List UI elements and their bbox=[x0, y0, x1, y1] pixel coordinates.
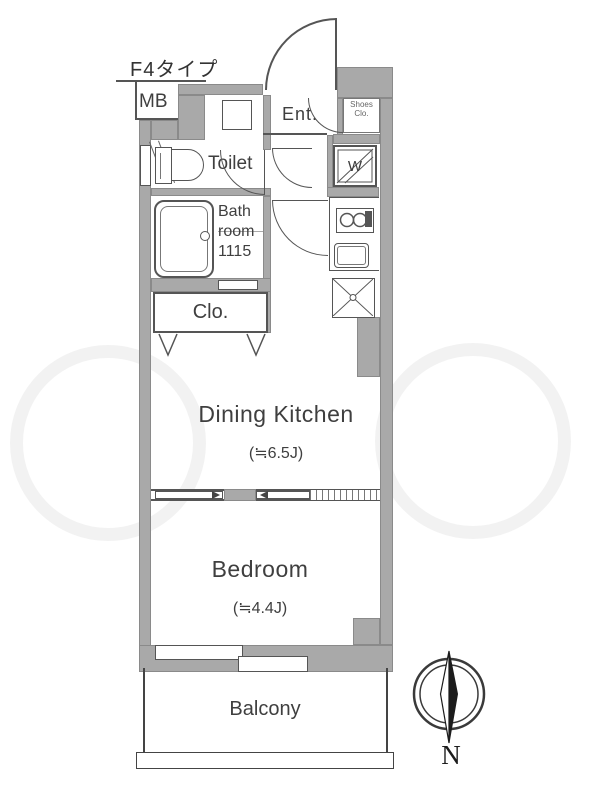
shoes-closet-door-arc bbox=[308, 98, 343, 133]
wall-ent-washer bbox=[333, 134, 380, 144]
wall-right bbox=[380, 98, 393, 645]
wall-top-right-block bbox=[337, 67, 393, 98]
wall-washer-kitchen bbox=[327, 187, 379, 197]
wall-toilet-top bbox=[151, 120, 178, 140]
balcony-label: Balcony bbox=[165, 698, 365, 721]
wall-bath-right-upper bbox=[263, 95, 271, 150]
bedroom-label: Bedroom bbox=[145, 556, 375, 583]
shoes-line1: Shoes bbox=[350, 100, 373, 109]
title-underline bbox=[116, 80, 206, 82]
wall-dk-pillar bbox=[357, 317, 380, 377]
partition-wall-chunk bbox=[224, 489, 256, 501]
wall-bedroom-pillar bbox=[353, 618, 380, 645]
partition-hatch bbox=[310, 489, 380, 501]
closet-door-triangle-right bbox=[246, 333, 266, 357]
sink-inner bbox=[337, 246, 366, 265]
toilet-bowl-icon bbox=[171, 149, 204, 181]
balcony-right-line bbox=[386, 668, 388, 752]
stove-icon bbox=[336, 208, 374, 233]
wall-left bbox=[139, 120, 151, 672]
utility-cabinet-box bbox=[222, 100, 252, 130]
genkan-step-line bbox=[263, 133, 327, 135]
north-label: N bbox=[433, 740, 469, 771]
refrigerator-cross bbox=[333, 279, 373, 316]
bathtub-knob bbox=[200, 231, 210, 241]
toilet-tank-icon bbox=[155, 147, 172, 184]
washer-label: W bbox=[333, 145, 377, 187]
shoes-closet-label: Shoes Clo. bbox=[343, 100, 380, 118]
balcony-rail bbox=[136, 752, 394, 769]
plan-title: F4タイプ bbox=[130, 53, 218, 82]
shoes-line2: Clo. bbox=[354, 109, 368, 118]
wall-mb-back bbox=[178, 95, 205, 140]
floor-plan: F4タイプ MB Ent. Shoes Clo. Toilet bbox=[0, 0, 600, 800]
toilet-window bbox=[140, 145, 151, 186]
dining-kitchen-size: (≒6.5J) bbox=[161, 443, 391, 463]
sliding-window-panel-left bbox=[155, 645, 243, 660]
bathroom-line2: room bbox=[218, 222, 254, 242]
mb-label: MB bbox=[139, 91, 168, 113]
closet-door-triangle-left bbox=[158, 333, 178, 357]
entrance-door-arc bbox=[265, 18, 337, 90]
mb-left-line bbox=[135, 80, 137, 120]
refrigerator-box bbox=[332, 278, 375, 318]
bathroom-line1: Bath bbox=[218, 202, 254, 222]
toilet-tank-line bbox=[160, 153, 161, 179]
dining-kitchen-label: Dining Kitchen bbox=[161, 401, 391, 428]
bedroom-size: (≒4.4J) bbox=[145, 598, 375, 618]
bathroom-label: Bath room 1115 bbox=[218, 202, 254, 262]
watermark-ring-right bbox=[375, 343, 571, 539]
bathroom-door-slot bbox=[218, 280, 258, 290]
closet-label: Clo. bbox=[153, 292, 268, 333]
balcony-left-line bbox=[143, 668, 145, 752]
wall-top-left bbox=[178, 84, 263, 95]
stove-burners bbox=[337, 209, 373, 232]
partition-arrow-left bbox=[260, 491, 268, 499]
bathroom-line3: 1115 bbox=[218, 242, 254, 262]
hall-door-arc bbox=[272, 148, 312, 188]
dk-door-arc bbox=[272, 200, 328, 256]
sliding-window-panel-right bbox=[238, 656, 308, 672]
partition-arrow-right bbox=[212, 491, 220, 499]
